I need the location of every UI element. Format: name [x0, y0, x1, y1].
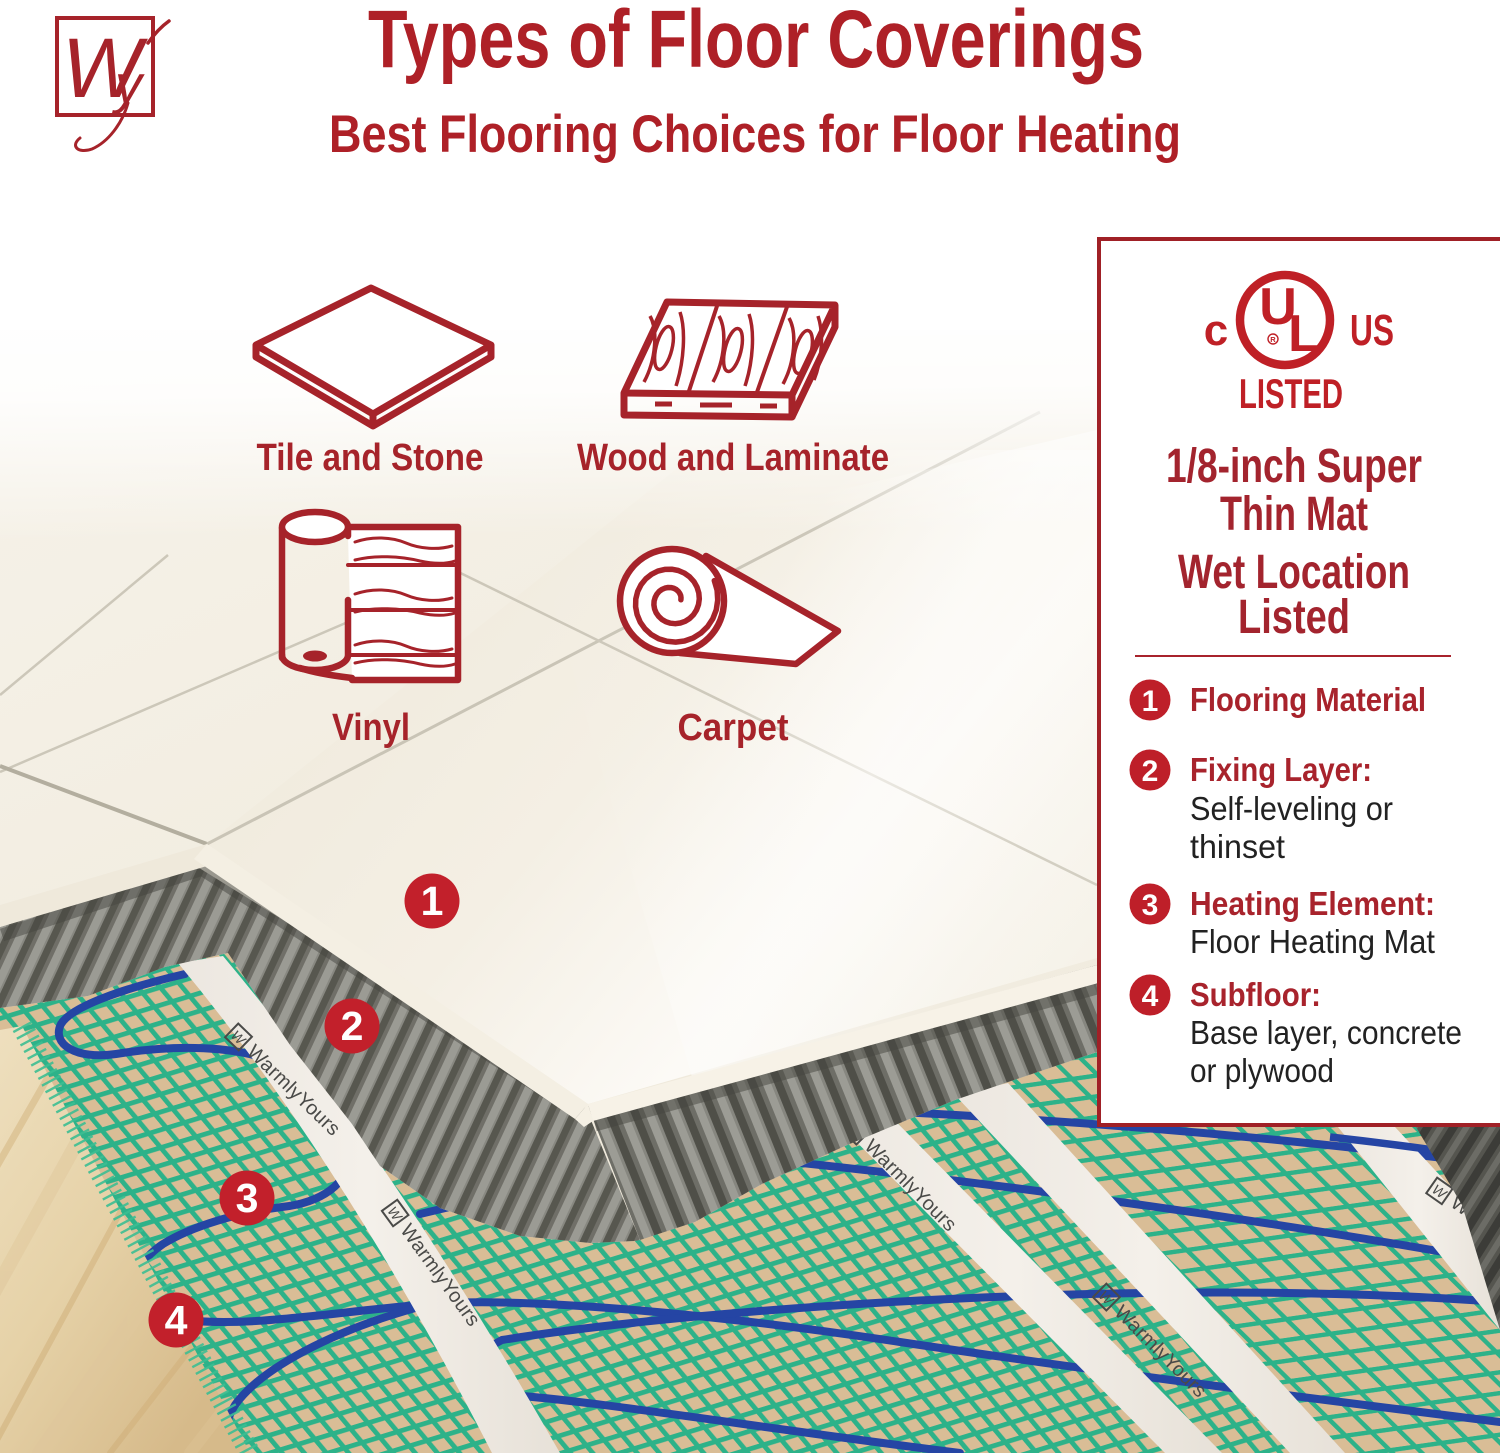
svg-text:4: 4 [1142, 980, 1159, 1013]
svg-text:Base layer, concrete: Base layer, concrete [1190, 1014, 1462, 1051]
svg-text:Floor Heating Mat: Floor Heating Mat [1190, 923, 1435, 960]
svg-text:Types of Floor Coverings: Types of Floor Coverings [368, 0, 1144, 85]
svg-text:US: US [1350, 306, 1394, 355]
svg-text:3: 3 [1142, 889, 1159, 922]
svg-text:or plywood: or plywood [1190, 1052, 1334, 1089]
svg-text:4: 4 [165, 1297, 188, 1343]
svg-text:Listed: Listed [1238, 591, 1350, 644]
svg-text:2: 2 [1142, 755, 1159, 788]
svg-text:2: 2 [341, 1003, 364, 1049]
svg-text:Best Flooring Choices for Floo: Best Flooring Choices for Floor Heating [329, 105, 1181, 164]
svg-text:LISTED: LISTED [1239, 370, 1343, 417]
svg-text:Heating Element:: Heating Element: [1190, 885, 1435, 922]
svg-text:1: 1 [1142, 685, 1159, 718]
svg-text:Flooring Material: Flooring Material [1190, 681, 1426, 718]
svg-text:Tile and Stone: Tile and Stone [257, 437, 484, 479]
svg-text:c: c [1204, 306, 1228, 355]
svg-text:thinset: thinset [1190, 828, 1285, 865]
svg-text:Fixing Layer:: Fixing Layer: [1190, 751, 1372, 788]
svg-text:Carpet: Carpet [678, 707, 789, 749]
svg-text:Self-leveling or: Self-leveling or [1190, 790, 1393, 827]
svg-text:3: 3 [236, 1175, 259, 1221]
svg-text:R: R [1270, 335, 1276, 344]
svg-text:Subfloor:: Subfloor: [1190, 976, 1321, 1013]
svg-text:Vinyl: Vinyl [332, 707, 410, 749]
svg-text:1: 1 [421, 878, 444, 924]
svg-text:Thin Mat: Thin Mat [1220, 488, 1368, 541]
svg-text:1/8-inch Super: 1/8-inch Super [1166, 440, 1422, 493]
svg-text:Wood and Laminate: Wood and Laminate [577, 437, 889, 479]
svg-text:L: L [1288, 305, 1320, 363]
